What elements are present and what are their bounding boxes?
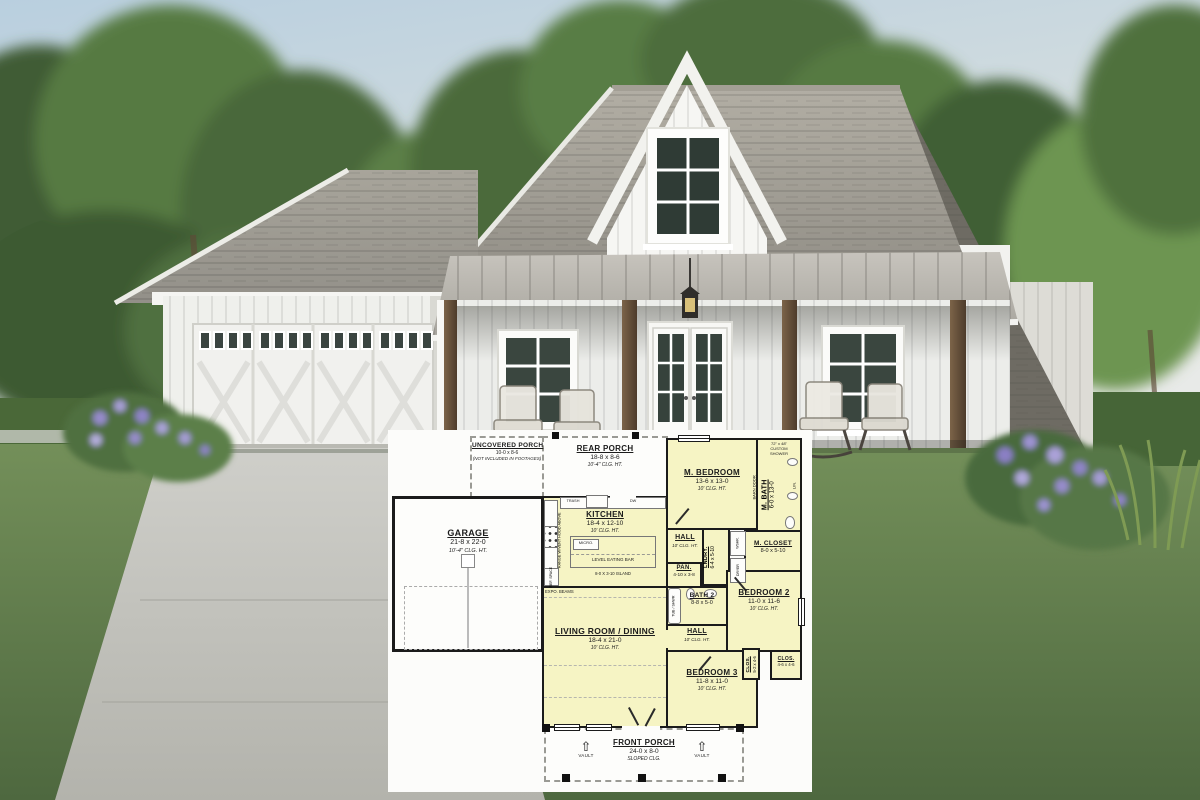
living-room: [542, 586, 668, 728]
washer-label: WSHR.: [730, 531, 746, 556]
room-clg: 10'-4" CLG. HT.: [402, 548, 534, 555]
annotation: TUB / SHWR: [672, 595, 676, 616]
room-dims: 5-2 x 4-6: [751, 656, 756, 673]
bedroom2-label: BEDROOM 2 11-0 x 11-6 10' CLG. HT.: [728, 588, 800, 612]
front-door-opening: [622, 726, 660, 731]
tub-shower-label: TUB / SHWR: [667, 588, 681, 624]
vault-arrow-right: ⇧ VAULT: [690, 740, 714, 759]
garage-center-line: [467, 560, 469, 648]
floor-plan-overlay: UNCOVERED PORCH 10-0 x 8-6 (NOT INCLUDED…: [388, 430, 812, 792]
room-clg: 10' CLG. HT.: [667, 543, 703, 549]
micro-label: MICRO.: [573, 541, 599, 546]
beam-line: [544, 597, 666, 598]
bath2-label: BATH 2 8-8 x 5-0: [680, 592, 724, 607]
living-label: LIVING ROOM / DINING 18-4 x 21-0 10' CLG…: [546, 626, 664, 651]
room-dims: 8-0 x 5-10: [746, 548, 800, 555]
custom-shower-label: 72" x 48" CUSTOM SHOWER: [757, 441, 801, 457]
porch-post-mark: [718, 774, 726, 782]
room-clg: 10'-4" CLG. HT.: [546, 462, 664, 468]
beam-line: [544, 665, 666, 666]
room-dims: 18-4 x 21-0: [546, 637, 664, 645]
garage-column-mark: [461, 554, 475, 568]
room-name: BEDROOM 3: [672, 668, 752, 678]
room-clg: 10' CLG. HT.: [672, 686, 752, 692]
room-dims: 4-6 x 4-6: [771, 662, 801, 667]
expo-beams-label: EXPO. BEAMS: [545, 589, 587, 594]
room-dims: 21-8 x 22-0: [402, 539, 534, 548]
garage-slab-outline: [404, 586, 538, 650]
room-note: (NOT INCLUDED IN FOOTAGES): [472, 456, 542, 462]
room-dims: 4-10 x 3-8: [667, 573, 701, 579]
dormer-window: [643, 128, 733, 250]
master-bedroom-label: M. BEDROOM 13-6 x 13-0 10' CLG. HT.: [670, 468, 754, 492]
room-name: BEDROOM 2: [728, 588, 800, 598]
pantry-label: PAN. 4-10 x 3-8: [667, 565, 701, 578]
room-dims: 8-8 x 5-0: [680, 600, 724, 607]
trash-label: TRASH: [562, 499, 584, 504]
annotation: REF. SPACE: [549, 567, 553, 588]
mbath-toilet: [785, 516, 795, 529]
annotation: BARN DOOR: [753, 475, 758, 499]
kitchen-sink: [586, 495, 608, 508]
porch-post-mark: [562, 774, 570, 782]
dw-label: DW: [624, 499, 642, 504]
annotation: LIN.: [793, 481, 798, 488]
room-dims: 13-6 x 13-0: [670, 478, 754, 486]
eating-bar-line: [571, 554, 655, 555]
island-label: 8-0 X 3-10 ISLAND: [582, 571, 644, 576]
master-closet-label: M. CLOSET 8-0 x 5-10: [746, 540, 800, 555]
laundry-label: LNDRY. 6-4 x 5-10: [700, 530, 718, 584]
room-name: REAR PORCH: [546, 444, 664, 454]
room-name: LIVING ROOM / DINING: [546, 626, 664, 637]
beam-line: [544, 697, 666, 698]
closet-b-label: CLOS. 4-6 x 4-6: [771, 656, 801, 668]
room-clg: 10' CLG. HT.: [670, 486, 754, 492]
room-dims: 6-0 x 13-0: [770, 480, 777, 511]
room-clg: 10' CLG. HT.: [546, 645, 664, 651]
room-dims: 24-0 x 8-0: [604, 748, 684, 756]
room-name: HALL: [667, 534, 703, 543]
hall-upper-label: HALL 10' CLG. HT.: [667, 534, 703, 548]
room-name: M. CLOSET: [746, 540, 800, 548]
porch-post-mark: [552, 432, 559, 439]
annotation: RANGE W/VENT HOOD ABOVE: [558, 512, 563, 568]
annotation: WSHR.: [736, 538, 740, 549]
annotation: DRYER: [736, 565, 740, 577]
barn-door-label: BARN DOOR: [750, 466, 760, 508]
mbath-sink-1: [787, 458, 798, 466]
room-name: M. BEDROOM: [670, 468, 754, 478]
room-name: BATH 2: [680, 592, 724, 600]
vault-arrow-left: ⇧ VAULT: [574, 740, 598, 759]
porch-post-mark: [632, 432, 639, 439]
vault-label: VAULT: [690, 753, 714, 759]
garage-label: GARAGE 21-8 x 22-0 10'-4" CLG. HT.: [402, 528, 534, 555]
front-porch-label: FRONT PORCH 24-0 x 8-0 SLOPED CLG.: [604, 738, 684, 762]
eating-bar-label: LEVEL EATING BAR: [572, 557, 654, 562]
closet-a-label: CLOS. 5-2 x 4-6: [741, 648, 761, 680]
range-label: RANGE W/VENT HOOD ABOVE: [554, 512, 566, 568]
room-name: M. BATH: [761, 480, 769, 511]
room-name: LNDRY.: [703, 546, 710, 569]
ref-space-label: REF. SPACE: [544, 566, 559, 588]
shower-word2: SHOWER: [757, 451, 801, 456]
linen-label: LIN.: [790, 474, 800, 496]
dryer-label: DRYER: [730, 558, 746, 583]
room-dims: 18-8 x 8-6: [546, 454, 664, 462]
room-name: HALL: [670, 628, 724, 637]
rear-porch-label: REAR PORCH 18-8 x 8-6 10'-4" CLG. HT.: [546, 444, 664, 468]
porch-post-mark: [736, 724, 744, 732]
up-arrow-icon: ⇧: [574, 740, 598, 753]
room-dims: 6-4 x 5-10: [709, 546, 715, 569]
hall-lower-label: HALL 10' CLG. HT.: [670, 628, 724, 642]
room-dims: 11-8 x 11-0: [672, 678, 752, 686]
bedroom3-label: BEDROOM 3 11-8 x 11-0 10' CLG. HT.: [672, 668, 752, 692]
room-name: UNCOVERED PORCH: [472, 442, 542, 450]
up-arrow-icon: ⇧: [690, 740, 714, 753]
room-name: CLOS.: [746, 656, 752, 673]
room-name: GARAGE: [402, 528, 534, 539]
porch-post-mark: [542, 724, 550, 732]
room-name: PAN.: [667, 565, 701, 573]
room-clg: 10' CLG. HT.: [728, 606, 800, 612]
room-name: FRONT PORCH: [604, 738, 684, 748]
vault-label: VAULT: [574, 753, 598, 759]
room-clg: 10' CLG. HT.: [670, 637, 724, 643]
window-mark: [678, 435, 710, 442]
uncovered-porch-label: UNCOVERED PORCH 10-0 x 8-6 (NOT INCLUDED…: [472, 442, 542, 462]
window-mark: [586, 724, 612, 731]
house-plan-marketing-image: { "scene": { "palette": { "sky_top": "#b…: [0, 0, 1200, 800]
room-dims: 11-0 x 11-6: [728, 598, 800, 606]
porch-post-mark: [638, 774, 646, 782]
room-clg: SLOPED CLG.: [604, 756, 684, 762]
hall-living-opening: [665, 630, 669, 648]
window-mark: [686, 724, 720, 731]
window-mark: [554, 724, 580, 731]
